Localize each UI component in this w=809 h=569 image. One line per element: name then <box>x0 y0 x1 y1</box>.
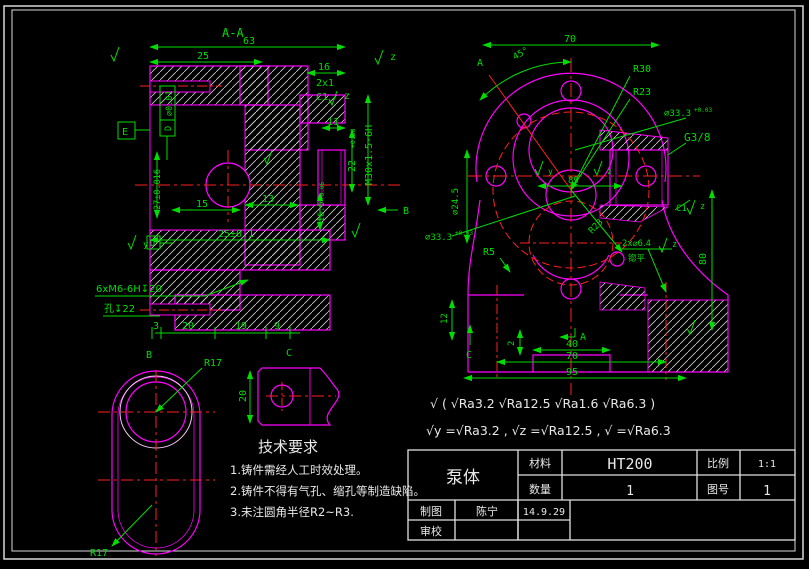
dim-11: 11 <box>327 117 339 128</box>
view-b-label: B <box>146 350 152 361</box>
rough-y-label: y <box>143 240 149 250</box>
dim-r30: R30 <box>633 64 651 75</box>
dim-12: 12 <box>440 313 450 324</box>
datum-e: E <box>122 127 128 138</box>
thread-spec: M30x1.5-6H <box>364 125 375 185</box>
dim-333-left-tol: +0.03 <box>455 230 473 237</box>
roughness-line-2: √y =√Ra3.2 , √z =√Ra12.5 , √ =√Ra6.3 <box>426 423 671 438</box>
part-name: 泵体 <box>446 468 480 488</box>
datum-d: D <box>150 239 155 249</box>
rough-z-label: z <box>390 52 396 63</box>
engineering-drawing: A-A 63 25 16 2x1 C1 11 22 +0.28 M30x1.5-… <box>0 0 809 569</box>
dim-15: 15 <box>196 199 208 210</box>
dim-27: 27±0.016 <box>153 169 163 210</box>
dim-333-left: ⌀33.3 <box>425 233 452 243</box>
dim-333-right-tol: +0.03 <box>694 107 712 114</box>
fcf-datum: D <box>164 126 174 131</box>
dim-2: 2 <box>507 341 517 346</box>
scale-label: 比例 <box>707 456 729 470</box>
dim-80: 80 <box>698 253 709 265</box>
qty-value: 1 <box>626 484 634 499</box>
view-arrow-b: B <box>403 206 409 217</box>
dim-2x1: 2x1 <box>316 78 334 89</box>
dim-r23: R23 <box>633 87 651 98</box>
dim-c1: C1 <box>676 204 687 214</box>
dim-16: 16 <box>318 62 330 73</box>
counterbore-note: 锪平 <box>628 253 646 264</box>
tap-note2: 孔↧22 <box>104 303 135 315</box>
dim-333-right: ⌀33.3 <box>664 109 691 119</box>
dim-19: 19 <box>235 321 247 332</box>
dim-25t: 25±0.1 <box>218 229 254 240</box>
rough-z-bore: z <box>607 167 612 176</box>
dim-165-tol: +0.06 <box>319 182 326 200</box>
view-arrow-c: C <box>466 350 472 361</box>
dim-r5: R5 <box>483 247 495 258</box>
r17-top: R17 <box>204 358 222 369</box>
dim-70-bottom: 70 <box>566 351 578 362</box>
drawing-no-label: 图号 <box>707 483 729 496</box>
tech-req-item-1: 1.铸件需经人工时效处理。 <box>230 463 367 477</box>
dim-70-top: 70 <box>564 34 576 45</box>
dim-63: 63 <box>243 36 255 47</box>
section-title: A-A <box>222 26 244 40</box>
dim-13: 13 <box>262 194 274 205</box>
section-letter-a-bottom: A <box>580 332 586 343</box>
tech-req-item-3: 3.未注圆角半径R2~R3. <box>230 505 354 519</box>
dim-95: 95 <box>566 367 578 378</box>
checker-label: 审校 <box>420 524 442 538</box>
section-letter-a: A <box>477 58 483 69</box>
roughness-line-1: √ ( √Ra3.2 √Ra12.5 √Ra1.6 √Ra6.3 ) <box>430 396 655 411</box>
dim-89: 89 <box>568 176 579 186</box>
rough-y-bore: y <box>548 167 553 176</box>
dim-165: 16.5 <box>317 202 327 222</box>
counterbore-section <box>648 300 728 372</box>
rough-z-c1: z <box>700 202 705 212</box>
dim-9: 9 <box>274 321 280 332</box>
material-value: HT200 <box>607 455 652 473</box>
scale-value: 1:1 <box>758 459 776 470</box>
tap-note: 6xM6-6H↧20 <box>96 284 162 295</box>
drawing-no-value: 1 <box>763 484 771 499</box>
fcf-value: ⌀0.01 <box>165 90 175 116</box>
material-label: 材料 <box>529 456 551 470</box>
r17-bottom: R17 <box>90 548 108 559</box>
rough-z-cb: z <box>672 240 677 250</box>
dim-22: 22 <box>347 160 358 172</box>
draft-date: 14.9.29 <box>523 507 565 518</box>
dim-40: 40 <box>566 339 578 350</box>
g38-label: G3/8 <box>684 131 711 144</box>
dim-3: 3 <box>153 321 159 332</box>
dim-20: 20 <box>182 321 194 332</box>
drafter-label: 制图 <box>420 505 442 518</box>
tech-req-item-2: 2.铸件不得有气孔、缩孔等制造缺陷。 <box>230 484 425 498</box>
cad-canvas: A-A 63 25 16 2x1 C1 11 22 +0.28 M30x1.5-… <box>0 0 809 569</box>
dim-22-tol: +0.28 <box>349 128 357 148</box>
dim-25: 25 <box>197 51 209 62</box>
rough-z2: z <box>344 91 350 102</box>
dim-245: ⌀24.5 <box>451 188 461 215</box>
dim-c1: C1 <box>316 92 328 103</box>
tech-req-title: 技术要求 <box>258 438 318 456</box>
counterbore-holes: 2x⌀6.4 <box>622 239 651 249</box>
view-c-label: C <box>286 348 292 359</box>
view-c-dim-20: 20 <box>238 390 249 402</box>
qty-label: 数量 <box>529 483 551 496</box>
drafter-name: 陈宁 <box>476 504 498 518</box>
